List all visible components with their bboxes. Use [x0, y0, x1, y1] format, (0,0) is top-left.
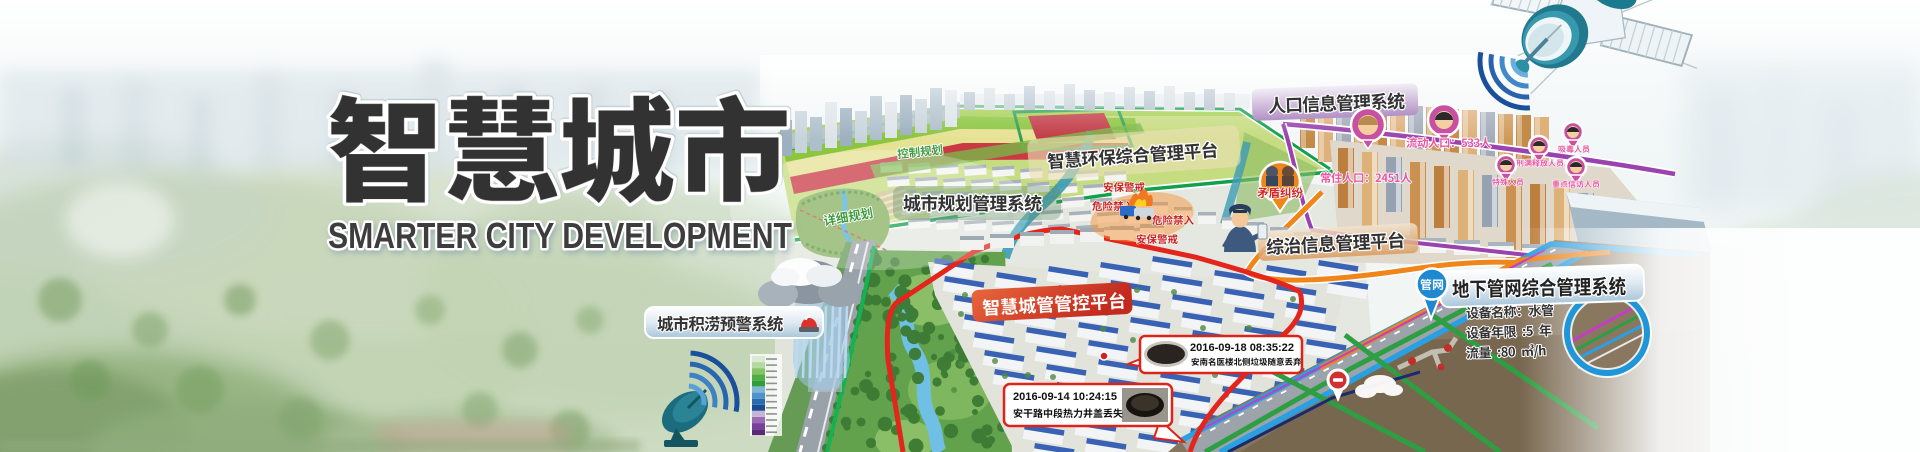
- svg-text:2016-09-18 08:35:22: 2016-09-18 08:35:22: [1190, 342, 1294, 354]
- svg-text:SMARTER CITY DEVELOPMENT: SMARTER CITY DEVELOPMENT: [328, 215, 792, 256]
- svg-text:2016-09-14 10:24:15: 2016-09-14 10:24:15: [1013, 391, 1117, 403]
